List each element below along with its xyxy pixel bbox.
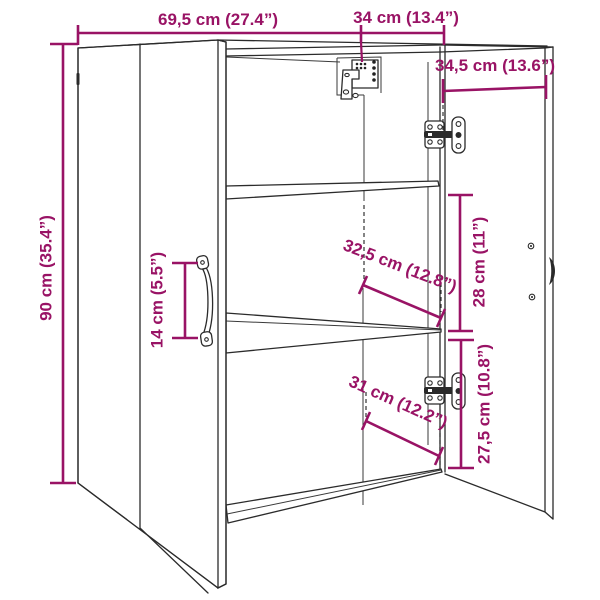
top-front-edge-upper: [226, 45, 441, 49]
open-door-bottom-edge: [445, 474, 553, 519]
dim-right-section-width: 34 cm (13.4”): [353, 8, 459, 45]
dim-inner-shelf-width: 32,5 cm (12.8”): [341, 235, 460, 327]
cabinet-top: [218, 40, 553, 56]
wall-mount-bracket: [337, 57, 381, 99]
dim-total-height-label: 90 cm (35.4”): [37, 215, 56, 321]
open-door-top-edge: [441, 48, 545, 52]
bottom-panel-edge: [227, 470, 441, 514]
left-door-hinge-mark: [77, 73, 80, 85]
product-dimension-diagram: 69,5 cm (27.4”) 34 cm (13.4”) 34,5 cm (1…: [0, 0, 600, 600]
shelf-top: [226, 181, 439, 199]
shelf-top-panel: [226, 181, 439, 199]
dim-door-width-label: 34,5 cm (13.6”): [435, 56, 555, 75]
interior-ceiling-edge: [226, 57, 340, 62]
dim-middle-compartment-height-label: 28 cm (11”): [470, 217, 489, 308]
shelf-middle: [226, 313, 441, 353]
dim-middle-compartment-height: 28 cm (11”): [448, 195, 489, 331]
top-front-edge-lower: [226, 52, 441, 56]
top-back-edge: [218, 40, 547, 46]
dim-handle-height-label: 14 cm (5.5”): [148, 252, 167, 348]
cabinet-interior: [226, 45, 445, 523]
dim-total-width-label: 69,5 cm (27.4”): [158, 10, 278, 29]
dim-bottom-compartment-height-label: 27,5 cm (10.8”): [475, 344, 494, 464]
cabinet-line-drawing: 69,5 cm (27.4”) 34 cm (13.4”) 34,5 cm (1…: [0, 0, 600, 600]
dim-door-width: 34,5 cm (13.6”): [435, 56, 555, 103]
bottom-panel-face: [226, 469, 442, 523]
dim-total-height: 90 cm (35.4”): [37, 44, 79, 483]
bottom-panel: [226, 469, 442, 523]
dim-inner-shelf-width-label: 32,5 cm (12.8”): [341, 235, 460, 296]
open-door-handle: [549, 257, 555, 285]
dim-right-section-width-label: 34 cm (13.4”): [353, 8, 459, 27]
shelf-middle-panel: [226, 313, 441, 353]
